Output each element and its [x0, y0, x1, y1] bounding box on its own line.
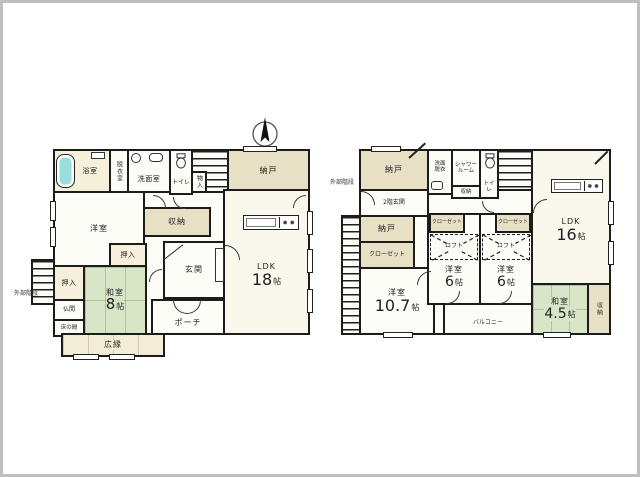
washer-icon — [131, 153, 141, 163]
washitsu-45-unit: 帖 — [568, 309, 576, 320]
window-1f-ldk-a — [307, 211, 313, 235]
room-western-6b-2f-label: 洋室 6帖 — [497, 265, 515, 288]
room-japanese-45-2f: 和室 4.5帖 — [531, 283, 589, 335]
room-monoire-1f-label: 物入 — [195, 175, 204, 189]
ldk-1f-size: 18 — [252, 272, 272, 288]
room-shower-2f-label: シャワールーム — [454, 162, 478, 175]
room-closet-left-2f-label: クローゼット — [369, 252, 405, 259]
room-storage-1f: 収納 — [143, 207, 211, 237]
room-closet-b-2f: クローゼット — [495, 213, 531, 233]
room-bath-1f-label: 浴室 — [83, 167, 98, 175]
bathtub-icon — [56, 154, 75, 188]
toilet-icon-2f — [484, 153, 496, 169]
balcony-2f: バルコニー — [443, 303, 533, 335]
kitchen-counter-icon-2f — [551, 179, 603, 193]
room-storeroom-1f-label: 納戸 — [260, 166, 278, 175]
kitchen-stove-icon-2f — [584, 181, 601, 191]
room-storage-small-2f: 収納 — [451, 185, 481, 199]
room-ldk-2f: LDK 16帖 — [531, 149, 611, 285]
room-storeroom-mid-2f: 納戸 — [359, 215, 415, 243]
toilet-icon-1f — [175, 153, 187, 169]
room-storeroom-1f: 納戸 — [227, 149, 310, 193]
loft-b-2f-label: ロフト — [496, 244, 516, 251]
room-japanese-8-1f: 和室 8帖 — [83, 265, 147, 335]
washitsu-1f-size: 8 — [106, 297, 116, 312]
room-closet-b-2f-label: クローゼット — [498, 220, 528, 226]
floorplan-canvas: 浴室 脱衣室 洗面室 トイレ 物入 納戸 洋室 収納 LDK 18帖 玄 — [0, 0, 640, 477]
external-stairs-1f-label: 外部階段 — [14, 291, 48, 298]
room-oshiire-top-1f: 押入 — [109, 243, 147, 267]
room-oshiire-left-1f: 押入 — [53, 265, 85, 301]
room-veranda-1f-label: 広縁 — [104, 340, 122, 349]
kitchen-counter-icon-1f — [243, 215, 299, 230]
loft-a-2f-label: ロフト — [444, 244, 464, 251]
washbasin-icon-1f — [149, 153, 163, 162]
washitsu-45-size: 4.5 — [544, 307, 566, 321]
ldk-2f-size: 16 — [556, 227, 576, 243]
window-2f-washitsu — [543, 332, 571, 338]
western-107-size: 10.7 — [375, 298, 411, 314]
western-6b-unit: 帖 — [507, 277, 515, 288]
window-2f-ldk-b — [608, 241, 614, 265]
bath-counter-icon — [91, 152, 105, 159]
window-1f-veranda-a — [73, 354, 99, 360]
room-washroom-1f-label: 洗面室 — [138, 175, 161, 183]
room-western-6a-2f-label: 洋室 6帖 — [445, 265, 463, 288]
western-6a-size: 6 — [445, 275, 454, 289]
loft-b-2f: ロフト — [482, 234, 530, 260]
western-107-unit: 帖 — [411, 302, 419, 313]
room-toilet-2f-label: トイレ — [481, 181, 497, 194]
room-senmen-2f-label: 洗面脱衣 — [434, 161, 447, 174]
window-2f-nando-top — [371, 146, 401, 152]
window-1f-west-b — [50, 227, 56, 247]
room-japanese-8-1f-label: 和室 8帖 — [106, 288, 125, 312]
room-storage-right-2f-label: 収納 — [595, 302, 604, 316]
porch-1f-label: ポーチ — [175, 318, 202, 327]
stairs-2f — [497, 149, 533, 191]
external-stairs-1f — [31, 259, 55, 305]
room-western-107-2f-label: 洋室 10.7帖 — [375, 288, 420, 313]
room-ldk-1f-label: LDK 18帖 — [252, 262, 281, 287]
room-japanese-45-2f-label: 和室 4.5帖 — [544, 297, 575, 320]
room-monoire-1f: 物入 — [191, 171, 207, 193]
room-closet-left-2f: クローゼット — [359, 241, 415, 269]
window-2f-ldk-a — [608, 201, 614, 225]
room-entrance-2f-label: 2階玄関 — [383, 200, 405, 207]
ldk-1f-unit: 帖 — [273, 276, 281, 287]
shoe-cabinet-icon — [215, 248, 224, 282]
room-storeroom-top-2f: 納戸 — [359, 149, 429, 191]
room-storage-small-2f-label: 収納 — [460, 189, 471, 195]
external-stairs-2f-label: 外部階段 — [330, 180, 364, 187]
external-stairs-2f — [341, 215, 361, 335]
room-butsuma-1f: 仏間 — [53, 299, 85, 321]
room-shower-2f: シャワールーム — [451, 149, 481, 187]
room-storage-right-2f: 収納 — [587, 283, 611, 335]
window-1f-veranda-b — [109, 354, 135, 360]
room-oshiire-top-1f-label: 押入 — [121, 251, 136, 259]
room-storeroom-top-2f-label: 納戸 — [385, 165, 403, 174]
ldk-2f-unit: 帖 — [578, 231, 586, 242]
kitchen-stove-icon-1f — [279, 217, 297, 228]
window-2f-western107 — [383, 332, 413, 338]
room-tokonoma-1f-label: 床の間 — [61, 325, 78, 331]
room-closet-a-2f: クローゼット — [429, 213, 465, 233]
room-ldk-1f: LDK 18帖 — [223, 189, 310, 335]
kitchen-sink-icon-1f — [246, 218, 276, 227]
room-dressing-1f-label: 脱衣室 — [115, 161, 124, 182]
room-closet-a-2f-label: クローゼット — [432, 220, 462, 226]
washitsu-1f-unit: 帖 — [116, 301, 124, 312]
room-toilet-1f-label: トイレ — [172, 180, 190, 187]
room-storage-1f-label: 収納 — [168, 217, 186, 226]
window-1f-ldk-b — [307, 249, 313, 273]
room-storeroom-mid-2f-label: 納戸 — [378, 224, 396, 233]
balcony-2f-label: バルコニー — [473, 320, 503, 327]
western-6a-unit: 帖 — [455, 277, 463, 288]
room-ldk-2f-label: LDK 16帖 — [556, 217, 585, 242]
window-1f-nando-top — [243, 146, 277, 152]
room-oshiire-left-1f-label: 押入 — [62, 279, 77, 287]
kitchen-sink-icon-2f — [554, 182, 581, 190]
western-6b-size: 6 — [497, 275, 506, 289]
washbasin-icon-2f — [431, 181, 443, 190]
room-butsuma-1f-label: 仏間 — [63, 307, 75, 314]
room-dressing-1f: 脱衣室 — [109, 149, 129, 193]
room-entrance-1f-label: 玄関 — [185, 265, 203, 274]
window-1f-ldk-c — [307, 289, 313, 313]
window-1f-west-a — [50, 201, 56, 221]
room-western-1f-label: 洋室 — [90, 224, 108, 233]
loft-a-2f: ロフト — [430, 234, 478, 260]
